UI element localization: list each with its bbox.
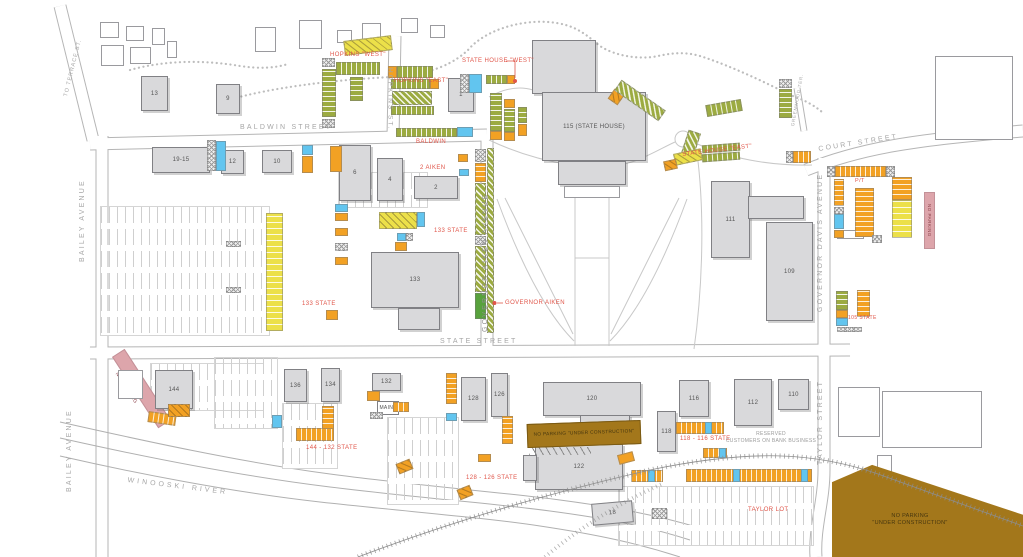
parking-row xyxy=(335,257,348,265)
building-label: 112 xyxy=(748,400,758,406)
building-label: 109 xyxy=(784,269,795,275)
lot-label-baldwin: BALDWIN xyxy=(416,139,446,145)
lot-label-state-house-west: STATE HOUSE "WEST" xyxy=(462,58,534,64)
street-label-governor-aiken: GOVERNOR AIKEN AVENUE xyxy=(482,193,489,332)
parking-row xyxy=(486,75,507,84)
parking-row xyxy=(507,75,515,84)
building-115-north-wing xyxy=(532,40,596,94)
parking-row xyxy=(834,179,844,206)
construction-lot-line1: NO PARKING xyxy=(850,513,970,520)
building-label: 118 xyxy=(661,429,671,435)
parking-row xyxy=(391,106,434,115)
building-133-stub xyxy=(398,308,440,330)
parking-row xyxy=(834,207,844,214)
building-label: 115 (STATE HOUSE) xyxy=(563,124,625,130)
parking-row xyxy=(226,287,241,293)
parking-row xyxy=(326,310,338,320)
parking-row xyxy=(733,469,740,482)
building-120: 120 xyxy=(543,382,641,416)
building-outline xyxy=(430,25,445,38)
parking-row xyxy=(836,318,848,326)
building-label: 19-15 xyxy=(173,157,190,163)
building-136: 136 xyxy=(284,369,307,402)
parking-row xyxy=(370,412,383,419)
parking-row xyxy=(395,242,407,251)
lot-label-2-aiken: 2 AIKEN xyxy=(420,165,445,171)
construction-hatch xyxy=(529,447,591,455)
parking-row xyxy=(504,109,515,132)
building-10: 10 xyxy=(262,150,292,173)
building-label: 136 xyxy=(290,383,301,389)
building-9: 9 xyxy=(216,84,240,114)
building-label: 2 xyxy=(434,185,438,191)
parking-row xyxy=(502,416,513,444)
building-outline xyxy=(299,20,322,49)
lot-label-governor-aiken: GOVERNOR AIKEN xyxy=(505,300,565,306)
street-label-taylor: TAYLOR STREET xyxy=(817,380,824,465)
parking-row xyxy=(652,508,667,519)
parking-row xyxy=(648,470,655,482)
parking-row xyxy=(457,127,473,137)
building-122-tower xyxy=(523,455,537,481)
building-label: 133 xyxy=(410,277,421,283)
street-label-greenwood: GREENWOOD TER. xyxy=(791,74,805,127)
building-19-15: 19-15 xyxy=(152,147,210,173)
parking-row xyxy=(322,406,334,429)
lot-label-133-state-lower: 133 STATE xyxy=(302,301,336,307)
street-label-governor-davis: GOVERNOR DAVIS AVENUE xyxy=(817,173,824,312)
parking-row xyxy=(406,233,413,241)
parking-row xyxy=(458,154,468,162)
parking-row xyxy=(469,74,482,93)
building-outline xyxy=(882,391,982,448)
building-outline xyxy=(401,18,418,33)
building-label: 4 xyxy=(388,177,392,183)
parking-row xyxy=(836,310,848,318)
building-label: 6 xyxy=(353,170,357,176)
building-outline xyxy=(126,26,144,41)
lot-label-128-126-state: 128 - 126 STATE xyxy=(466,475,517,481)
parking-row xyxy=(330,146,342,172)
building-128: 128 xyxy=(461,377,486,421)
parking-aisles xyxy=(387,417,459,505)
parking-row xyxy=(478,454,491,462)
parking-row xyxy=(855,188,874,237)
building-outline xyxy=(152,28,165,45)
street-label-hopkins: HOPKINS ST. xyxy=(386,68,393,130)
parking-row xyxy=(335,213,348,221)
parking-row xyxy=(475,163,486,182)
building-4: 4 xyxy=(377,158,403,201)
no-parking-zone-court: NO PARKING xyxy=(924,192,935,249)
street-label-bailey-upper: BAILEY AVENUE xyxy=(79,179,86,262)
building-132: 132 xyxy=(372,373,401,391)
building-label: 18 xyxy=(609,510,617,517)
parking-row xyxy=(322,69,336,117)
building-126: 126 xyxy=(491,373,508,417)
parking-row xyxy=(266,213,283,331)
parking-row xyxy=(779,89,792,118)
parking-row xyxy=(396,128,457,137)
parking-row xyxy=(393,402,409,412)
parking-row xyxy=(336,62,380,75)
parking-row xyxy=(296,428,334,441)
lot-label-144-132-state: 144 - 132 STATE xyxy=(306,445,357,451)
lot-label-hopkins-west: HOPKINS "WEST" xyxy=(330,52,386,58)
parking-row xyxy=(417,212,425,227)
parking-row xyxy=(892,177,912,200)
building-label: 111 xyxy=(725,217,735,223)
building-111: 111 xyxy=(711,181,750,258)
building-label: 132 xyxy=(381,379,392,385)
parking-row xyxy=(835,166,886,177)
building-118: 118 xyxy=(657,411,676,452)
construction-lot-label: NO PARKING "UNDER CONSTRUCTION" xyxy=(850,513,970,527)
parking-row xyxy=(705,99,743,117)
parking-aisles xyxy=(214,357,278,429)
building-outline xyxy=(255,27,276,52)
parking-row xyxy=(446,373,457,404)
building-outline xyxy=(935,56,1013,140)
building-outline xyxy=(100,22,119,38)
building-label: 110 xyxy=(788,392,798,398)
parking-row xyxy=(518,124,527,136)
parking-row xyxy=(631,470,663,482)
building-2: 2 xyxy=(414,176,458,199)
building-label: 10 xyxy=(273,159,280,165)
parking-row xyxy=(207,140,216,171)
parking-row xyxy=(367,391,380,401)
parking-row xyxy=(226,241,241,247)
parking-row xyxy=(686,469,812,482)
parking-row xyxy=(719,448,726,458)
building-outline xyxy=(167,41,177,58)
parking-row xyxy=(834,214,844,229)
parking-row xyxy=(392,91,432,105)
building-outline xyxy=(101,45,124,66)
parking-row xyxy=(834,230,844,238)
parking-row xyxy=(892,200,912,238)
parking-row xyxy=(793,151,811,163)
building-label: 12 xyxy=(229,159,236,165)
parking-row xyxy=(475,149,486,162)
parking-row xyxy=(397,66,433,78)
parking-row xyxy=(379,212,417,229)
parking-row xyxy=(827,166,835,177)
parking-row xyxy=(518,107,527,123)
building-label: 122 xyxy=(574,464,585,470)
building-133: 133 xyxy=(371,252,459,308)
parking-row xyxy=(322,58,335,67)
parking-row xyxy=(872,235,882,243)
building-label: 120 xyxy=(587,396,598,402)
street-label-to-terrace: TO TERRACE ST. xyxy=(64,39,84,97)
building-label: 116 xyxy=(689,396,699,402)
parking-row xyxy=(786,151,793,163)
parking-row xyxy=(857,290,870,317)
parking-row xyxy=(779,79,792,88)
building-110: 110 xyxy=(778,379,809,410)
construction-zone-taylor: NO PARKING "UNDER CONSTRUCTION" xyxy=(832,461,1023,557)
no-parking-court-label: NO PARKING xyxy=(927,204,932,237)
building-outline xyxy=(838,387,880,437)
building-6: 6 xyxy=(339,145,371,201)
building-109: 109 xyxy=(766,222,813,321)
street-label-state: STATE STREET xyxy=(440,338,517,345)
reserved-bank-note: RESERVED CUSTOMERS ON BANK BUSINESS xyxy=(716,431,826,444)
building-18: 18 xyxy=(591,500,634,525)
street-label-bailey-lower: BAILEY AVENUE xyxy=(66,409,73,492)
parking-row xyxy=(490,93,502,131)
parking-row xyxy=(272,415,282,428)
state-house-steps xyxy=(564,186,620,198)
building-112: 112 xyxy=(734,379,772,426)
parking-row xyxy=(490,131,502,140)
lot-label-hopkins-east: HOPKINS "EAST" xyxy=(394,78,448,84)
reserved-line2: CUSTOMERS ON BANK BUSINESS xyxy=(716,438,826,445)
building-134: 134 xyxy=(321,368,340,402)
parking-row xyxy=(397,233,406,241)
building-label: 9 xyxy=(226,96,230,102)
parking-row xyxy=(302,145,313,155)
river-label: WINOOSKI RIVER xyxy=(127,477,228,496)
lot-label-taylor-lot: TAYLOR LOT xyxy=(748,507,788,513)
construction-lot-line2: "UNDER CONSTRUCTION" xyxy=(850,520,970,527)
building-116: 116 xyxy=(679,380,709,417)
parking-row xyxy=(504,132,515,141)
parking-row xyxy=(705,422,712,434)
parking-aisles xyxy=(100,206,270,336)
parking-row xyxy=(663,159,678,171)
parking-aisles xyxy=(618,486,814,546)
building-outline xyxy=(118,370,143,399)
parking-row xyxy=(168,404,190,417)
parking-row xyxy=(886,166,895,177)
building-label: 144 xyxy=(169,387,180,393)
construction-zone-strip: NO PARKING "UNDER CONSTRUCTION" xyxy=(527,420,642,448)
lot-label-105-state: 105 STATE xyxy=(848,316,877,321)
parking-map: NO PARKING NO PARKING 13 9 1 19-15 12 10… xyxy=(0,0,1023,557)
parking-row xyxy=(302,156,313,173)
building-13: 13 xyxy=(141,76,168,111)
building-115-portico xyxy=(558,161,626,185)
parking-row xyxy=(335,204,348,212)
parking-row xyxy=(335,228,348,236)
parking-row xyxy=(837,327,862,332)
building-outline xyxy=(130,47,151,64)
parking-row xyxy=(335,243,348,251)
parking-row xyxy=(460,74,469,93)
construction-strip-label: NO PARKING "UNDER CONSTRUCTION" xyxy=(528,429,640,439)
parking-row xyxy=(216,141,226,171)
street-label-court: COURT STREET xyxy=(818,133,899,153)
building-111-wing xyxy=(748,196,804,219)
parking-row xyxy=(504,99,515,108)
parking-row xyxy=(836,291,848,310)
parking-row xyxy=(350,77,363,101)
parking-row xyxy=(446,413,457,421)
building-label: 128 xyxy=(468,396,479,402)
building-label: 134 xyxy=(325,382,336,388)
lot-label-133-state-upper: 133 STATE xyxy=(434,228,468,234)
lot-label-pt: P/T xyxy=(855,179,865,185)
street-label-baldwin: BALDWIN STREET xyxy=(240,124,332,131)
building-label: 13 xyxy=(151,91,158,97)
parking-row xyxy=(456,485,473,500)
parking-row xyxy=(459,169,469,176)
building-label: 126 xyxy=(494,392,505,398)
parking-row xyxy=(801,469,808,482)
